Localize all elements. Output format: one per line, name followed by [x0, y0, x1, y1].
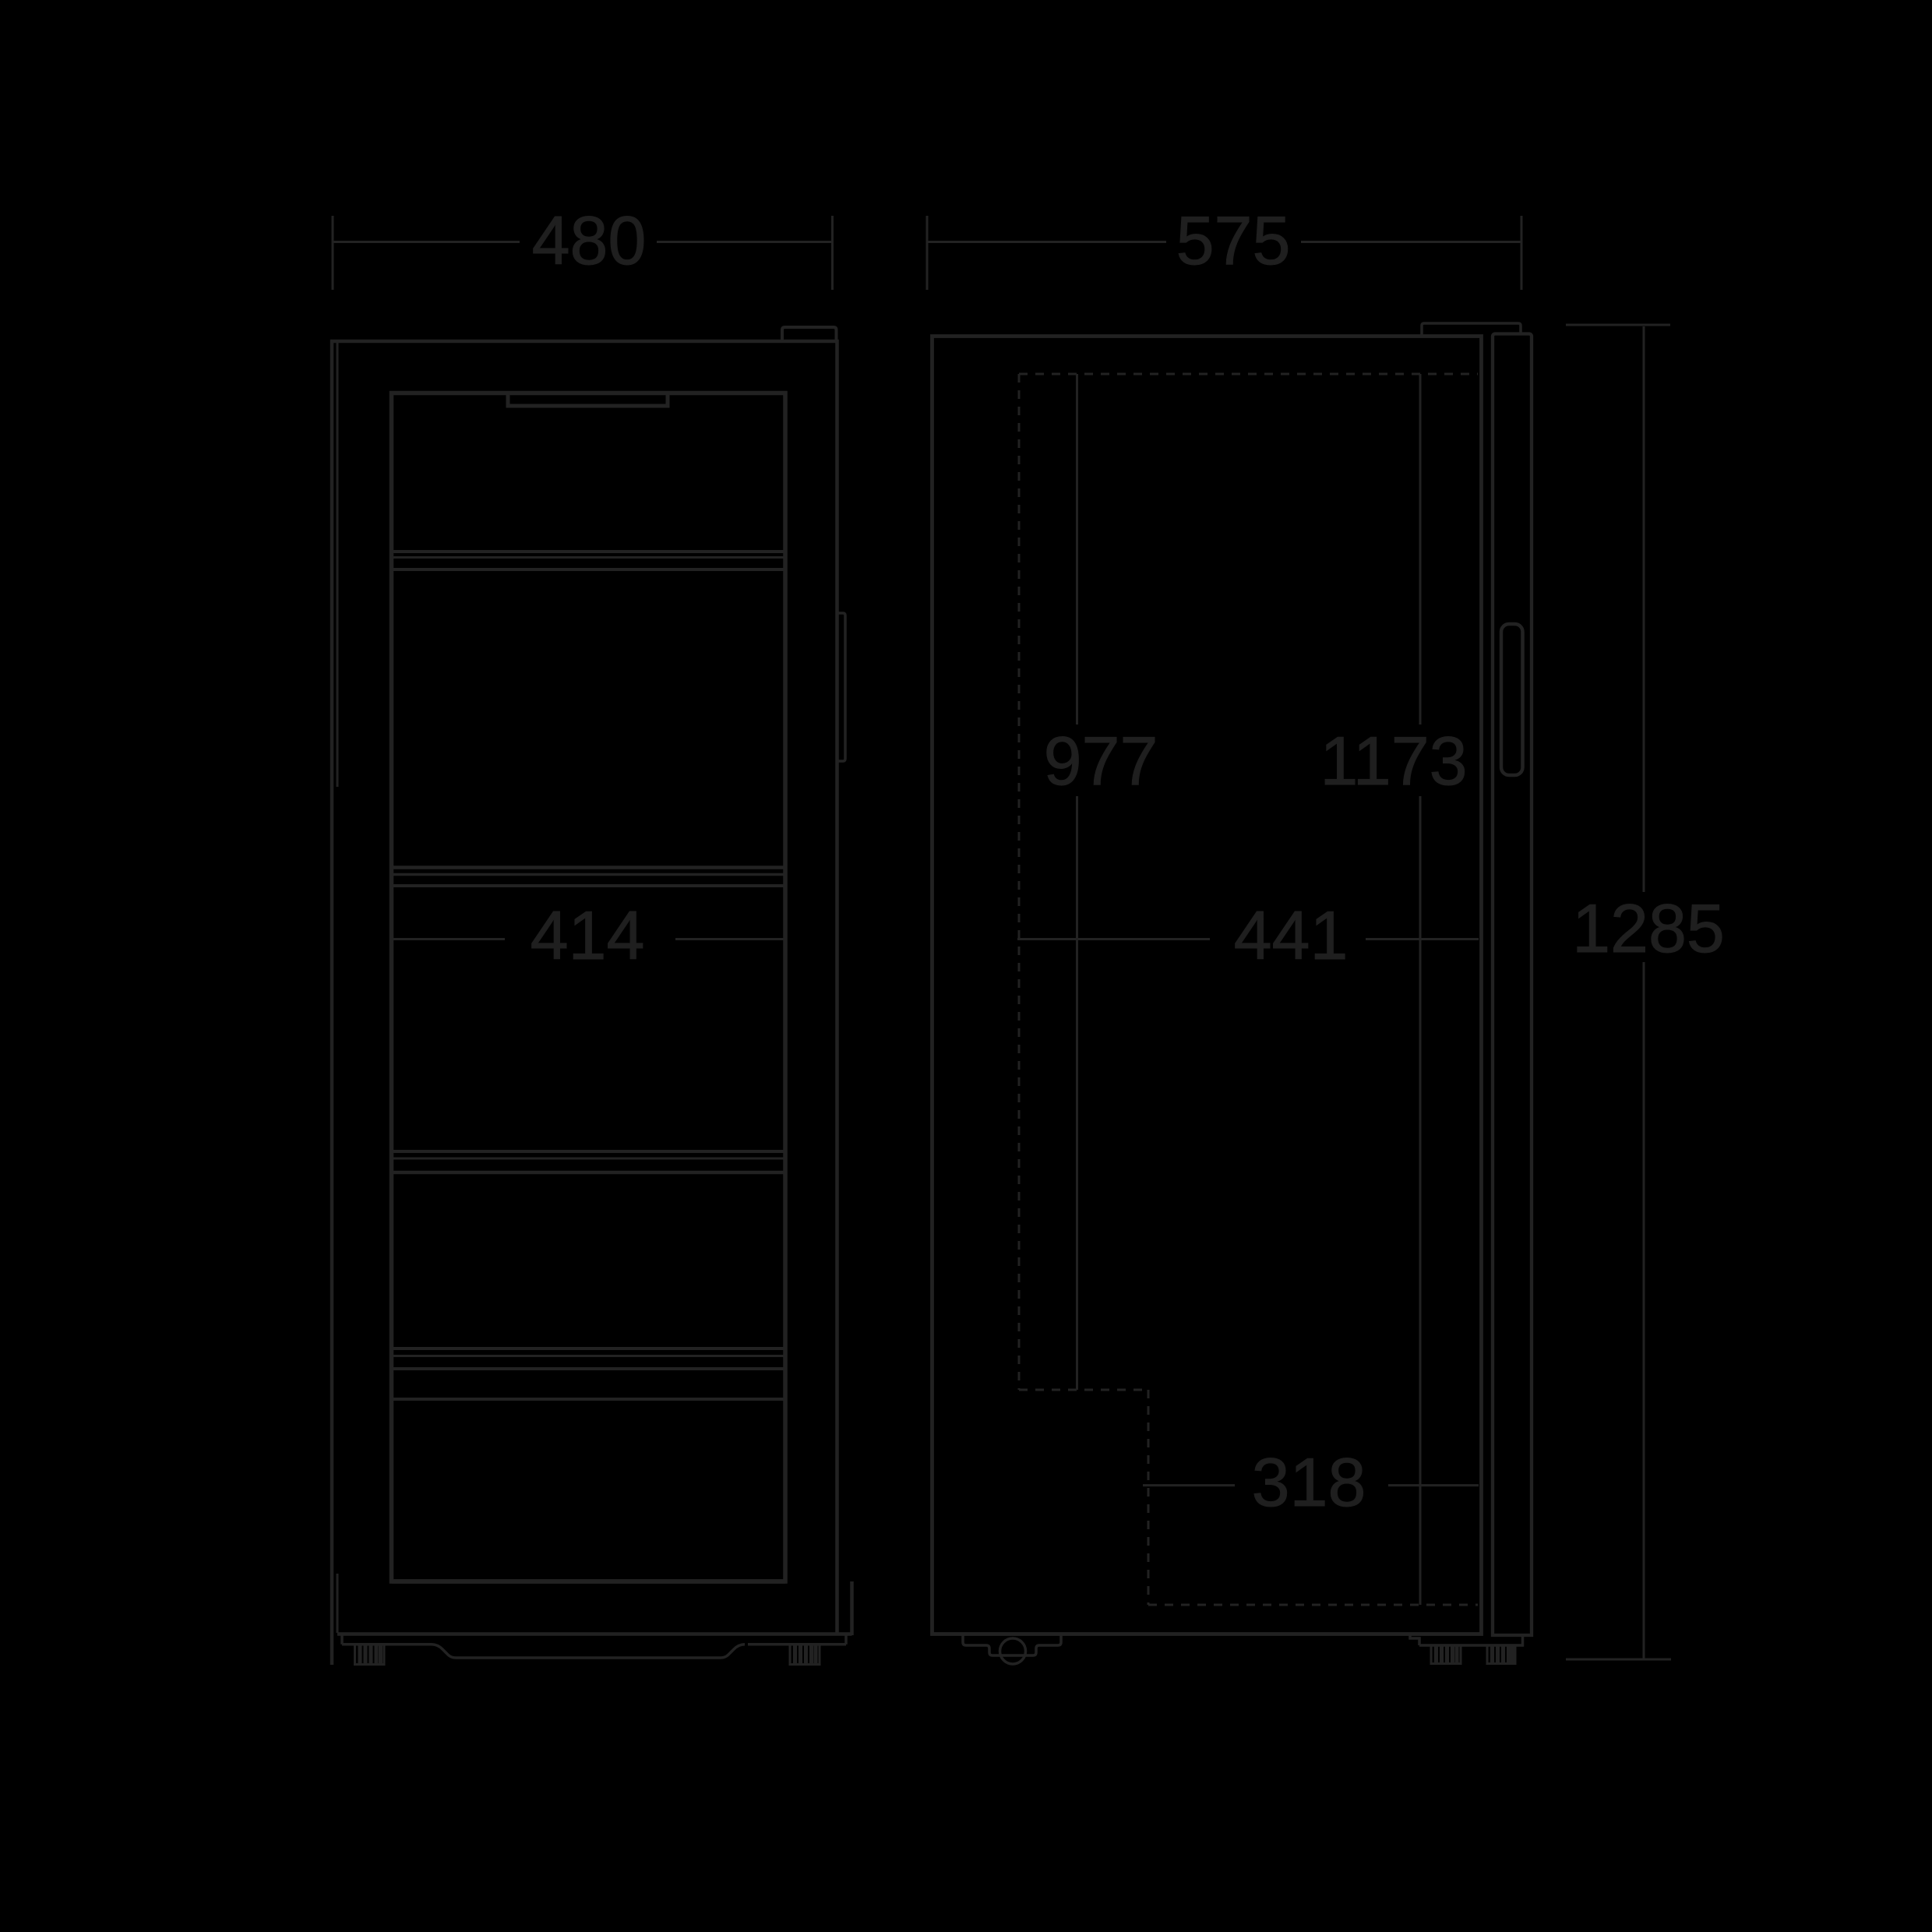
svg-text:977: 977: [1044, 722, 1158, 799]
svg-text:1285: 1285: [1572, 890, 1725, 967]
svg-text:441: 441: [1234, 897, 1349, 974]
svg-text:318: 318: [1252, 1444, 1366, 1521]
svg-text:414: 414: [531, 897, 645, 974]
svg-text:480: 480: [532, 202, 647, 279]
svg-text:1173: 1173: [1320, 722, 1467, 799]
svg-text:575: 575: [1176, 202, 1291, 279]
